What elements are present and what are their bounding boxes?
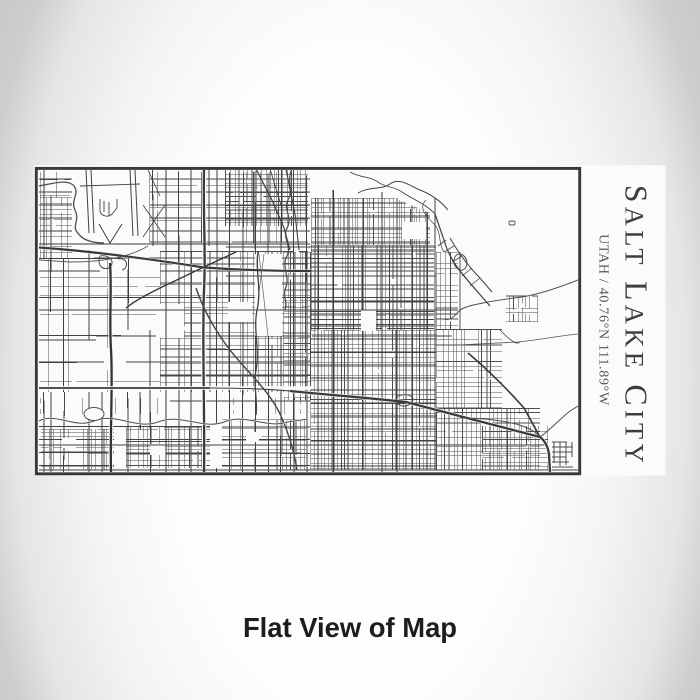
svg-text:SALT LAKE CITY: SALT LAKE CITY — [619, 185, 654, 467]
svg-text:UTAH / 40.76°N 111.89°W: UTAH / 40.76°N 111.89°W — [596, 234, 611, 406]
